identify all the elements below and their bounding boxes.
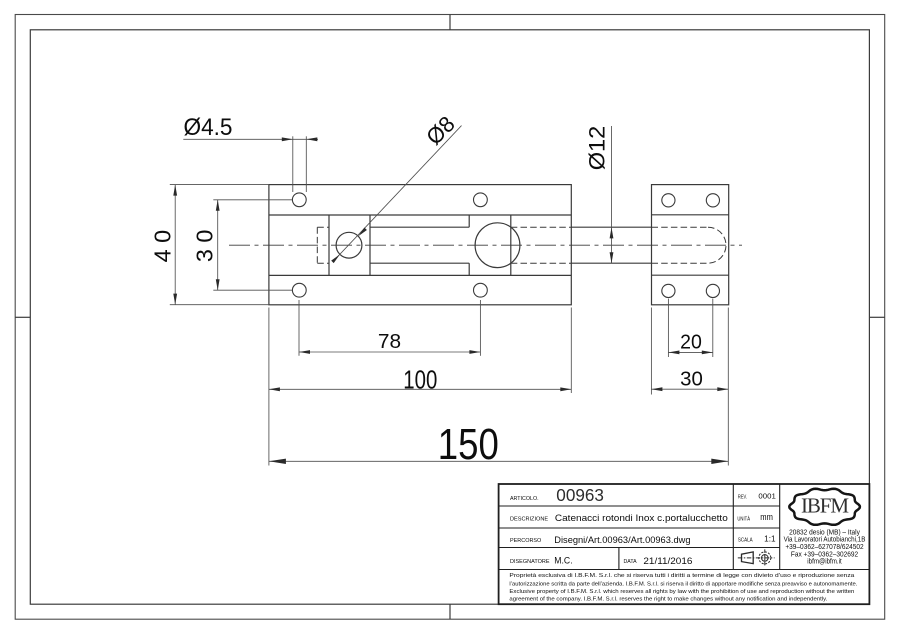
svg-text:+39–0362–627078/624502: +39–0362–627078/624502 [785, 544, 863, 551]
svg-text:100: 100 [403, 366, 437, 394]
svg-text:ibfm@ibfm.it: ibfm@ibfm.it [807, 559, 841, 566]
svg-text:0001: 0001 [758, 492, 775, 501]
svg-text:SCALA: SCALA [738, 538, 753, 544]
svg-text:l’autorizzazione scritta da pa: l’autorizzazione scritta da parte dell’a… [509, 581, 857, 587]
svg-text:00963: 00963 [556, 485, 604, 505]
svg-text:REV.: REV. [738, 494, 747, 500]
svg-text:UNITÀ: UNITÀ [737, 515, 750, 522]
svg-text:DATA: DATA [624, 559, 637, 565]
svg-text:30: 30 [192, 230, 218, 263]
svg-text:Ø12: Ø12 [585, 126, 610, 171]
svg-text:ARTICOLO.: ARTICOLO. [510, 496, 539, 502]
svg-text:1:1: 1:1 [764, 535, 775, 544]
svg-text:DISEGNATORE: DISEGNATORE [510, 559, 550, 565]
svg-text:20832 desio (MB) – Italy: 20832 desio (MB) – Italy [789, 529, 860, 536]
svg-text:21/11/2016: 21/11/2016 [643, 556, 692, 566]
svg-text:Exclusive property of I.B.F.M.: Exclusive property of I.B.F.M. S.r.l. wh… [509, 589, 854, 595]
svg-text:78: 78 [378, 331, 401, 353]
svg-text:Via Lavoratori Autobianchi,1B: Via Lavoratori Autobianchi,1B [784, 537, 866, 544]
svg-text:40: 40 [150, 230, 176, 263]
svg-text:Fax +39–0362–302692: Fax +39–0362–302692 [791, 551, 858, 558]
svg-text:M.C.: M.C. [554, 556, 572, 566]
svg-text:20: 20 [680, 331, 702, 354]
svg-text:agreement of the company. I.B.: agreement of the company. I.B.F.M. S.r.l… [509, 597, 827, 603]
svg-text:Proprietà esclusiva di I.B.F.M: Proprietà esclusiva di I.B.F.M. S.r.l. c… [509, 573, 855, 579]
svg-text:IBFM: IBFM [801, 494, 849, 518]
svg-text:Ø4.5: Ø4.5 [184, 115, 233, 141]
svg-text:30: 30 [680, 368, 703, 391]
svg-text:Catenacci rotondi Inox c.porta: Catenacci rotondi Inox c.portalucchetto [555, 513, 728, 523]
svg-text:DESCRIZIONE: DESCRIZIONE [510, 516, 548, 522]
svg-text:150: 150 [438, 420, 499, 469]
svg-text:Ø8: Ø8 [421, 111, 459, 149]
svg-text:PERCORSO: PERCORSO [510, 538, 542, 544]
svg-text:Disegni/Art.00963/Art.00963.dw: Disegni/Art.00963/Art.00963.dwg [554, 535, 690, 545]
svg-text:mm: mm [760, 512, 773, 522]
